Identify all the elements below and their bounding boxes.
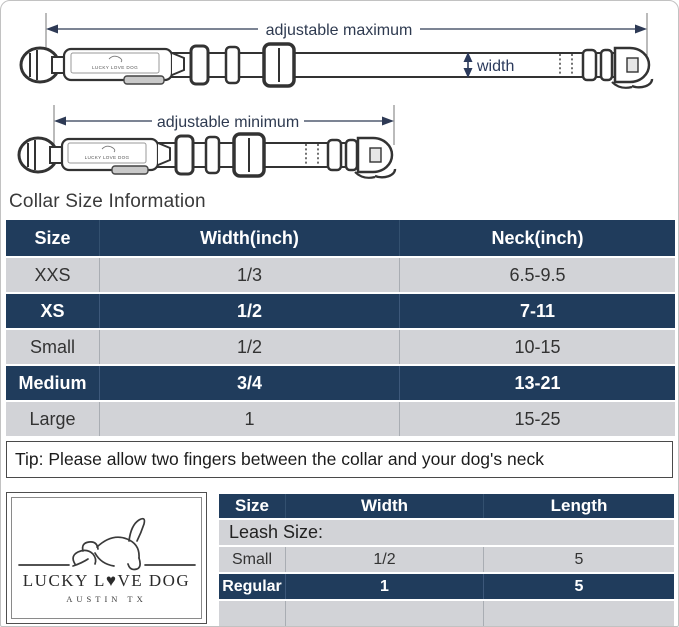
brand-logo: LUCKY L♥VE DOG AUSTIN TX	[6, 492, 207, 624]
left-dring-icon	[19, 138, 63, 172]
cell-size: Regular	[219, 574, 285, 599]
cell-neck: 6.5-9.5	[399, 258, 675, 292]
collar-maximum-diagram: adjustable maximum LUCKY LOVE DOG	[6, 7, 675, 101]
cell-length: 5	[483, 574, 674, 599]
col-header-size: Size	[6, 220, 99, 256]
col-header-length: Length	[483, 494, 674, 518]
col-header-size: Size	[219, 494, 285, 518]
cell-width: 1/2	[99, 330, 399, 364]
triglide-slider-icon	[264, 44, 294, 86]
table-row-xxs: XXS 1/3 6.5-9.5	[6, 258, 675, 292]
triglide-slider-icon	[234, 134, 264, 176]
dog-logo-icon	[15, 513, 199, 575]
table-row-leash-small: Small 1/2 5	[219, 547, 674, 572]
collar-size-table: Size Width(inch) Neck(inch) XXS 1/3 6.5-…	[6, 218, 675, 438]
cell-size: Large	[6, 402, 99, 436]
bottom-section: LUCKY L♥VE DOG AUSTIN TX Leash Size: Siz…	[6, 492, 673, 627]
buckle-icon: LUCKY LOVE DOG	[64, 49, 184, 84]
empty-cell	[483, 601, 674, 627]
left-dring-icon	[21, 48, 65, 82]
cell-size: Small	[219, 547, 285, 572]
cell-width: 3/4	[99, 366, 399, 400]
col-header-width: Width(inch)	[99, 220, 399, 256]
leash-size-title: Leash Size:	[219, 520, 674, 545]
col-header-width: Width	[285, 494, 483, 518]
cell-neck: 15-25	[399, 402, 675, 436]
table-row-small: Small 1/2 10-15	[6, 330, 675, 364]
empty-cell	[219, 601, 285, 627]
collar-size-infographic: adjustable maximum LUCKY LOVE DOG	[0, 0, 679, 627]
table-row-leash-regular: Regular 1 5	[219, 574, 674, 599]
cell-width: 1/3	[99, 258, 399, 292]
cell-width: 1/2	[99, 294, 399, 328]
collar-table-header-row: Size Width(inch) Neck(inch)	[6, 220, 675, 256]
cell-neck: 10-15	[399, 330, 675, 364]
leash-size-table: Leash Size: Size Width Length Small 1/2 …	[219, 492, 674, 627]
width-label: width	[476, 58, 514, 75]
cell-size: Small	[6, 330, 99, 364]
col-header-neck: Neck(inch)	[399, 220, 675, 256]
buckle-brand-label: LUCKY LOVE DOG	[92, 65, 138, 70]
cell-width: 1/2	[285, 547, 483, 572]
cell-neck: 7-11	[399, 294, 675, 328]
min-dimension-label: adjustable minimum	[157, 114, 299, 131]
buckle-brand-label: LUCKY LOVE DOG	[85, 155, 130, 160]
cell-size: XS	[6, 294, 99, 328]
cell-length: 5	[483, 547, 674, 572]
table-row-large: Large 1 15-25	[6, 402, 675, 436]
cell-size: Medium	[6, 366, 99, 400]
table-row-empty	[219, 601, 674, 627]
buckle-icon: LUCKY LOVE DOG	[62, 139, 170, 174]
brand-location: AUSTIN TX	[66, 594, 146, 604]
empty-cell	[285, 601, 483, 627]
collar-diagrams: adjustable maximum LUCKY LOVE DOG	[1, 1, 678, 189]
cell-width: 1	[99, 402, 399, 436]
cell-neck: 13-21	[399, 366, 675, 400]
table-row-medium: Medium 3/4 13-21	[6, 366, 675, 400]
leash-title-row: Leash Size:	[219, 520, 674, 545]
brand-name: LUCKY L♥VE DOG	[23, 571, 190, 591]
fit-tip: Tip: Please allow two fingers between th…	[6, 441, 673, 478]
max-dimension-label: adjustable maximum	[266, 22, 413, 39]
leash-header-row: Size Width Length	[219, 494, 674, 518]
cell-width: 1	[285, 574, 483, 599]
table-row-xs: XS 1/2 7-11	[6, 294, 675, 328]
cell-size: XXS	[6, 258, 99, 292]
collar-minimum-diagram: adjustable minimum LUCKY LOVE DOG	[6, 101, 675, 189]
collar-size-title: Collar Size Information	[9, 191, 678, 213]
